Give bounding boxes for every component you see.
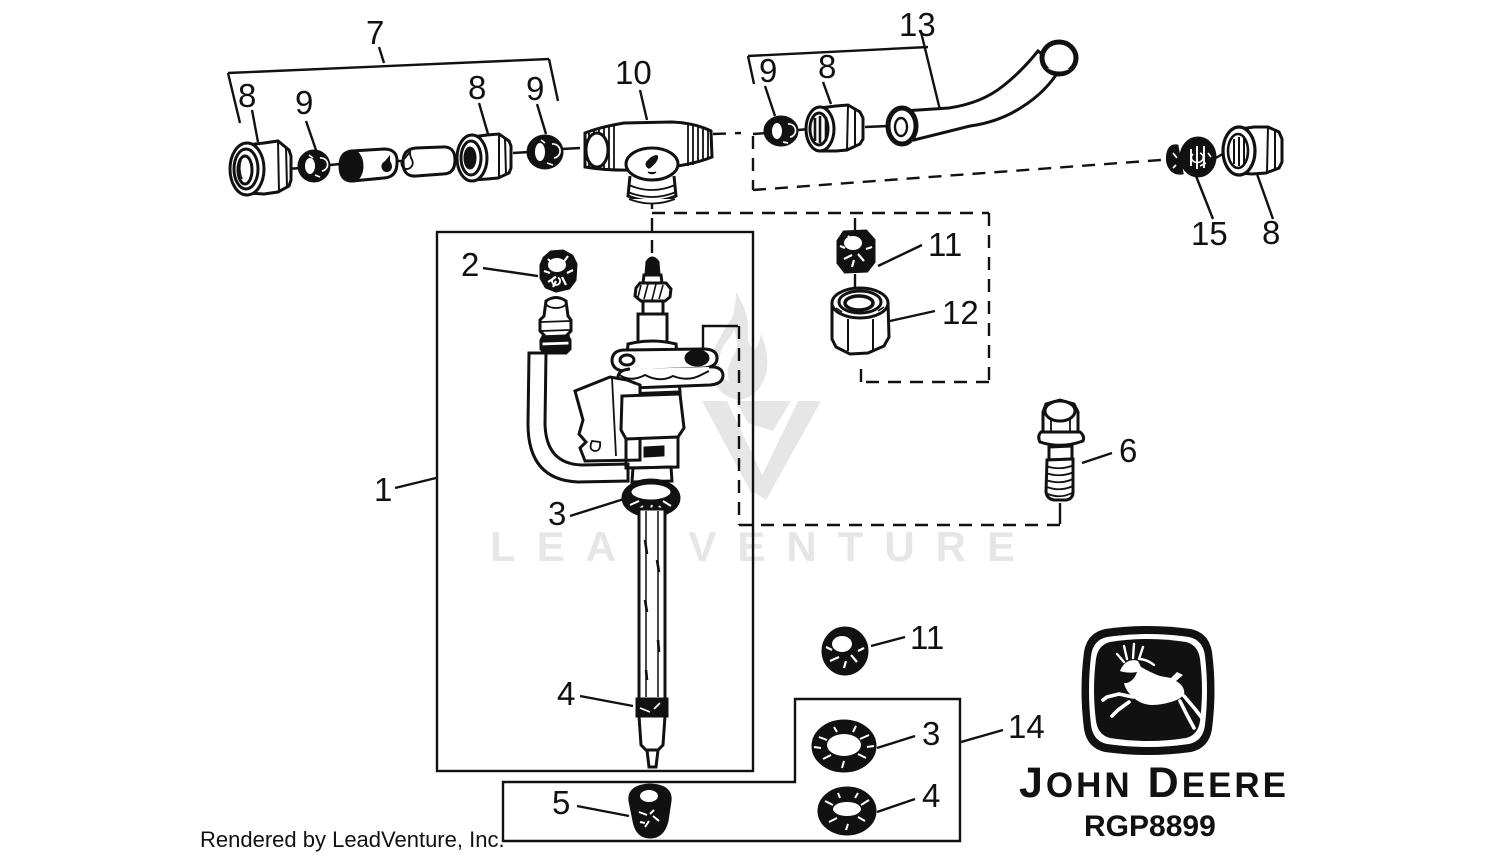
svg-text:6: 6 xyxy=(1119,432,1137,469)
svg-text:12: 12 xyxy=(942,294,979,331)
svg-text:1: 1 xyxy=(374,471,392,508)
svg-text:2: 2 xyxy=(461,246,479,283)
svg-text:14: 14 xyxy=(1008,708,1045,745)
svg-text:JOHN DEERE: JOHN DEERE xyxy=(1019,759,1289,807)
svg-text:11: 11 xyxy=(928,226,962,263)
svg-text:4: 4 xyxy=(557,675,575,712)
svg-text:7: 7 xyxy=(366,14,384,51)
svg-text:15: 15 xyxy=(1191,215,1228,252)
svg-text:13: 13 xyxy=(899,6,936,43)
svg-text:LEADVENTURE: LEADVENTURE xyxy=(490,523,1036,570)
svg-text:8: 8 xyxy=(468,69,486,106)
svg-text:8: 8 xyxy=(238,77,256,114)
svg-text:9: 9 xyxy=(295,84,313,121)
svg-text:Rendered by LeadVenture, Inc.: Rendered by LeadVenture, Inc. xyxy=(200,827,505,852)
svg-text:8: 8 xyxy=(1262,214,1280,251)
svg-text:5: 5 xyxy=(552,784,570,821)
svg-text:11: 11 xyxy=(910,619,944,656)
svg-text:3: 3 xyxy=(548,495,566,532)
svg-text:9: 9 xyxy=(759,52,777,89)
svg-text:4: 4 xyxy=(922,777,940,814)
svg-text:3: 3 xyxy=(922,715,940,752)
svg-text:9: 9 xyxy=(526,70,544,107)
svg-text:10: 10 xyxy=(615,54,652,91)
svg-text:RGP8899: RGP8899 xyxy=(1084,810,1216,843)
